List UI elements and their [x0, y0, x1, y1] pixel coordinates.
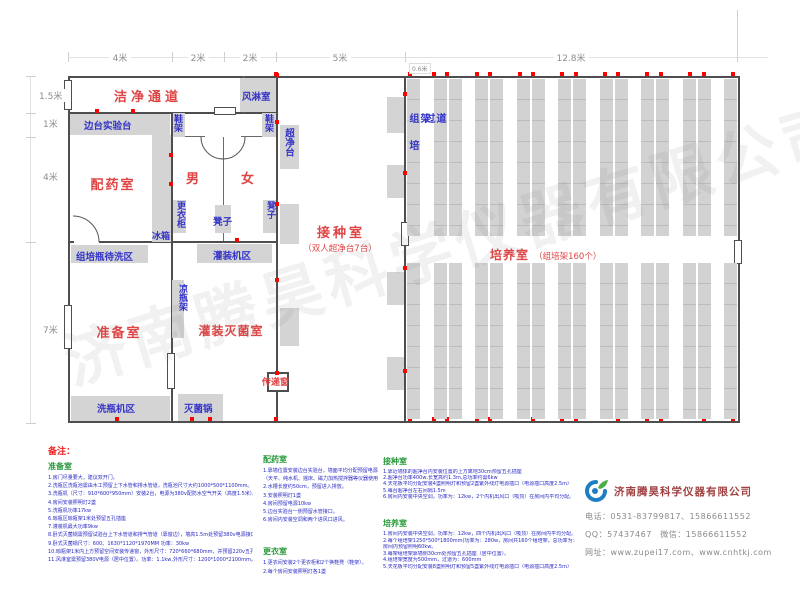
dim-top-5m: 5米	[330, 51, 351, 64]
company-phone: 电话：0531-83799817、15866611552	[585, 511, 772, 522]
outlet-dot	[645, 72, 649, 76]
notes-section-inoculation: 接种室	[383, 456, 578, 467]
label-inoculation-room: 接种室	[317, 222, 365, 241]
notes-col-dispensing: 配药室 1.靠墙位置安装边台实验台，墙面平均分配预留电源插口 （天平、纯水机、摇…	[263, 450, 378, 576]
note-item: 5.天花板平均分配安装8盏照明灯和预留5盏紫外线灯电源插口（电源插口高度2.5m…	[383, 564, 578, 571]
rack-column	[407, 263, 420, 419]
label-bottle-wait: 组培瓶待洗区	[76, 249, 133, 263]
dim-tick	[276, 52, 277, 62]
label-bottle-washer: 洗瓶机区	[97, 401, 135, 415]
outlet-dot	[432, 72, 436, 76]
dim-tick	[26, 113, 36, 114]
label-clean-corridor: 洁净通道	[114, 86, 182, 105]
dim-rack-width: 0.6米	[409, 63, 431, 74]
outlet-dot	[275, 202, 279, 206]
rack-pair	[517, 79, 545, 236]
dim-tick	[26, 137, 36, 138]
notes-section-culture: 培养室	[383, 518, 578, 529]
dim-left-4m: 4米	[40, 170, 61, 183]
label-shoe-rack-left: 鞋架	[172, 114, 182, 140]
culture-racks-bottom	[407, 263, 737, 419]
rack-column	[724, 263, 737, 419]
inoc-bench-block	[280, 204, 299, 244]
label-culture-room: 培养室	[490, 248, 529, 262]
label-culture-room-group: 培养室 （组培架160个）	[490, 244, 601, 263]
dim-tick	[172, 52, 173, 62]
note-item: 2.水槽长度约50cm，预留进入排放。	[263, 483, 378, 491]
rack-pair	[475, 79, 503, 236]
inoc-bench-block	[387, 272, 404, 305]
outlet-dot	[275, 120, 279, 124]
rack-pair	[600, 79, 628, 236]
outlet-dot	[560, 72, 564, 76]
dim-top-2m-b: 2米	[240, 51, 261, 64]
note-item: 3.洗瓶机（尺寸：910*600*950mm）安装2台，电源为380v配防水空气…	[48, 490, 253, 498]
note-item: 11.风淋室需预留380V电源（居中位置）。功率：1.1kw,外形尺寸：1200…	[48, 556, 253, 564]
outlet-dot	[208, 417, 212, 421]
label-locker-left: 更衣柜	[174, 201, 185, 235]
label-air-shower: 风淋室	[242, 89, 271, 103]
note-item: 4.房间预留电源10kw	[263, 500, 378, 508]
note-item: 8.卧式灭菌锅需预留试验台上下水管道和排气管道（靠窗边），墙高1.5m处预留38…	[48, 531, 253, 539]
outlet-dot	[275, 278, 279, 282]
note-item: 4.房间安装照明灯2盏	[48, 499, 253, 507]
outlet-dot	[131, 109, 135, 113]
outlet-dot	[169, 153, 173, 157]
note-item: 6.房间内安装中央空调，功率为：12kw，2个内机出风口（吸顶）在房间内平均分配…	[383, 494, 578, 500]
dim-tick	[26, 242, 36, 243]
dim-tick	[68, 52, 69, 62]
floor-plan-canvas: 4米 2米 2米 5米 12.8米 0.6米 1.5米 1米 4米 7米	[0, 0, 800, 600]
outlet-dot	[475, 72, 479, 76]
outlet-dot	[531, 72, 535, 76]
outlet-dot	[702, 72, 706, 76]
note-item: 9.卧式灭菌锅尺寸：600、1630*1120*1970MM 功率：30kw	[48, 540, 253, 548]
rack-pair	[641, 79, 669, 236]
wall-lower-horizontal	[99, 241, 277, 243]
dim-top-4m: 4米	[110, 51, 131, 64]
dim-tick	[26, 423, 36, 424]
outlet-dot	[190, 417, 194, 421]
rack-pair	[517, 263, 545, 419]
note-item: （天平、纯水机、摇床、磁力加热搅拌器等仪器使用）	[263, 475, 378, 483]
label-pass-window: 传递窗	[262, 375, 289, 388]
notes-col-prep: 备注： 准备室 1.房门尽量要大，建议双开门。 2.洗瓶区洗瓶池需由木工预留上下…	[48, 444, 253, 564]
note-item: 1.靠墙位置安装边台实验台，墙面平均分配预留电源插口	[263, 467, 378, 475]
company-name: 济南腾昊科学仪器有限公司	[614, 484, 752, 499]
top-dim-guide	[68, 57, 768, 58]
wall-inoculation-right-lower	[404, 246, 406, 423]
outlet-dot	[574, 72, 578, 76]
rack-column	[724, 79, 737, 236]
label-cool-rack: 凉瓶架	[173, 284, 190, 336]
dim-tick	[26, 76, 36, 77]
note-item: 1.房门尽量要大，建议双开门。	[48, 474, 253, 482]
wall-lower-left-stub	[68, 241, 74, 243]
note-item: 2.洗瓶区洗瓶池需由木工预留上下水管和排水管道，洗瓶池尺寸大约1000*500*…	[48, 482, 253, 490]
outlet-dot	[235, 238, 239, 242]
label-dispensing-room: 配药室	[90, 174, 135, 193]
outlet-dot	[616, 72, 620, 76]
outlet-dot	[518, 72, 522, 76]
note-item: 5.边台实验台一侧预留水管接口。	[263, 508, 378, 516]
door-prep-fill	[167, 353, 175, 389]
outlet-dot	[603, 72, 607, 76]
notes-section-dispensing: 配药室	[263, 454, 378, 465]
dim-tick	[224, 52, 225, 62]
rack-pair	[683, 263, 711, 419]
note-item: 3.安装照明灯1盏	[263, 492, 378, 500]
notes-section-prep: 准备室	[48, 461, 253, 472]
label-side-bench: 边台实验台	[84, 118, 132, 132]
dispensing-bench-block	[152, 135, 171, 227]
notes-title: 备注：	[48, 444, 253, 457]
notes-section-changing: 更衣室	[263, 546, 378, 557]
dim-tick	[737, 10, 738, 62]
left-dim-guide	[30, 76, 31, 423]
rack-pair	[683, 79, 711, 236]
note-item: 4.天花板平均分配安装4盏照明灯和预留2盏紫外线灯电源插口（电源插口高度2.5m…	[383, 481, 578, 487]
outlet-dot	[169, 182, 173, 186]
label-sterilizer-pot: 灭菌锅	[184, 401, 213, 415]
rack-pair	[558, 263, 586, 419]
label-male: 男	[186, 168, 199, 187]
outlet-dot	[688, 72, 692, 76]
dim-left-1m: 1米	[40, 117, 61, 130]
inoc-bench-block	[387, 357, 404, 390]
note-item: 7.灌装机最大功率9kw	[48, 523, 253, 531]
outlet-dot	[275, 73, 279, 77]
note-item: 1.更衣间安装2个更衣柜和2个换鞋凳（鞋架）。	[263, 559, 378, 567]
outlet-dot	[115, 417, 119, 421]
inoc-bench-block	[387, 165, 404, 198]
note-item: 2.每个房间安装照明灯各1盏	[263, 568, 378, 576]
label-fill-sterilize-room: 灌装灭菌室	[198, 322, 263, 339]
label-inoculation-sub: （双人超净台7台）	[303, 242, 376, 254]
label-female: 女	[241, 168, 254, 187]
outlet-dot	[488, 72, 492, 76]
dim-top-12-8m: 12.8米	[553, 51, 588, 64]
inoc-bench-block	[280, 308, 299, 346]
wall-inoculation-right-upper	[404, 76, 406, 222]
inoc-bench-block	[387, 97, 404, 133]
company-web[interactable]: 网址：www.zupei17.com、www.cnhtkj.com	[585, 547, 772, 558]
note-item: 1.房间内安装中央空调，功率为：12kw，四个内机出风口（吸顶）在房间内平均分配…	[383, 531, 578, 538]
rack-pair	[600, 263, 628, 419]
note-item: 10.晾瓶架1米内上方预留空间安装传递窗，外形尺寸：720*660*680mm，…	[48, 548, 253, 556]
notes-col-inoculation: 接种室 1.靠近墙体的超净台内安装位置的上方离地30cm预留五孔插座 2.超净台…	[383, 452, 578, 570]
outlet-dot	[95, 109, 99, 113]
door-corridor-top	[214, 107, 236, 115]
rack-pair	[475, 263, 503, 419]
label-stool: 凳子	[213, 214, 232, 228]
dim-tick	[405, 52, 406, 62]
company-block: 济南腾昊科学仪器有限公司 电话：0531-83799817、1586661155…	[585, 478, 772, 558]
note-item: 5.洗瓶机功率17kw	[48, 507, 253, 515]
note-item: 6.晾瓶区晾瓶架1米处预留五孔插座	[48, 515, 253, 523]
outlet-dot	[274, 417, 278, 421]
window-prep-room	[64, 305, 72, 349]
dim-left-7m: 7米	[40, 323, 61, 336]
outlet-dot	[731, 72, 735, 76]
outlet-dot	[659, 72, 663, 76]
label-filling-zone: 灌装机区	[213, 248, 251, 262]
rack-pair	[641, 263, 669, 419]
dim-top-2m-a: 2米	[188, 51, 209, 64]
label-fridge: 冰箱	[152, 229, 170, 242]
door-culture-right	[734, 240, 742, 264]
label-locker-right: 凳子	[264, 201, 275, 235]
rack-pair	[434, 263, 462, 419]
culture-racks-top	[407, 79, 737, 236]
outlet-dot	[445, 72, 449, 76]
note-item: 6.房间内安装空调和两个进风口进风。	[263, 516, 378, 524]
label-culture-sub: （组培架160个）	[534, 252, 601, 262]
label-shoe-rack-right: 鞋架	[263, 114, 273, 140]
company-logo-icon	[585, 478, 609, 504]
label-clean-bench: 超净台	[283, 128, 294, 168]
rack-pair	[558, 79, 586, 236]
label-aisle-vertical: 过道	[423, 113, 445, 191]
company-qq-wechat: QQ：57437467 微信：15866611552	[585, 529, 772, 540]
dim-left-1-5m: 1.5米	[36, 89, 65, 102]
label-prep-room: 准备室	[96, 322, 141, 341]
